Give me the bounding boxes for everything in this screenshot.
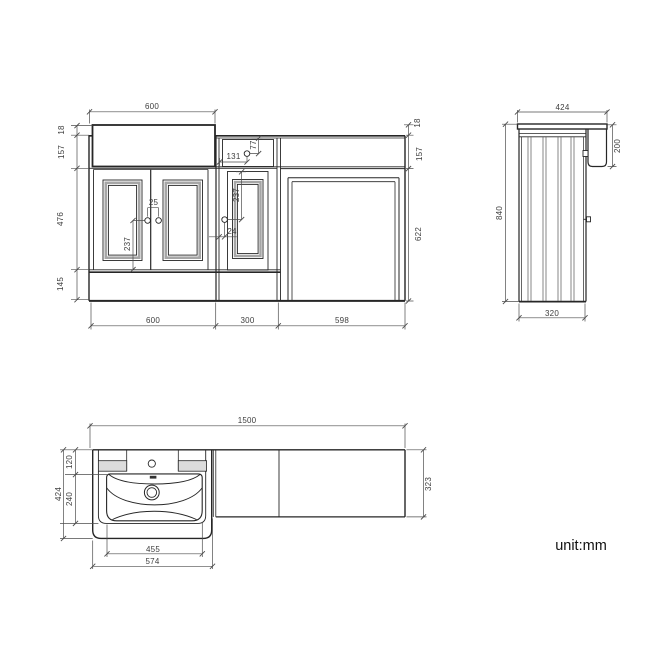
basin-front-face (93, 125, 216, 167)
dim-side-height: 840 (496, 206, 504, 220)
dim-side-cabinet-depth: 320 (545, 310, 559, 318)
dim-front-left-counter-lip: 18 (58, 125, 66, 134)
dim-front-bottom-vanity: 600 (146, 317, 160, 325)
dim-front-left-plinth: 145 (57, 277, 65, 291)
dim-front-bottom-middle: 300 (241, 317, 255, 325)
dim-front-drawer-knob-y: 77 (250, 141, 258, 150)
dim-plan-bowl-width: 455 (146, 546, 160, 554)
plan-view (93, 450, 405, 539)
dim-front-right-body-height: 622 (415, 227, 423, 241)
side-countertop (518, 124, 608, 129)
dim-front-left-door-height: 476 (57, 212, 65, 226)
dim-side-apron-drop: 200 (614, 139, 622, 153)
right-door-panel (163, 180, 203, 261)
plan-dimension-lines (60, 423, 427, 569)
middle-door-knob (222, 217, 228, 223)
dim-front-right-counter-lip: 18 (414, 118, 422, 127)
dim-plan-total-depth: 424 (55, 487, 63, 501)
technical-drawing-page: 600 18 157 476 145 18 157 622 600 300 59… (0, 0, 650, 650)
dim-side-top-depth: 424 (556, 104, 570, 112)
dim-plan-counter-depth: 323 (425, 477, 433, 491)
dim-front-bottom-wc: 598 (335, 317, 349, 325)
dim-front-mid-knob-drop: 237 (233, 188, 241, 202)
dim-plan-basin-width: 574 (146, 558, 160, 566)
wc-unit-panel (288, 178, 399, 301)
side-basin-apron (588, 129, 607, 167)
side-panel-grooves (528, 137, 574, 301)
basin-bowl (107, 474, 203, 521)
dim-front-knob-gap: 25 (149, 199, 158, 207)
side-view (518, 124, 608, 302)
overflow-slot (150, 476, 157, 479)
side-door-knob (584, 217, 591, 222)
dim-front-top-width: 600 (145, 103, 159, 111)
dim-front-right-fascia: 157 (416, 147, 424, 161)
dim-plan-bowl-depth: 240 (66, 492, 74, 506)
dim-plan-total-width: 1500 (238, 417, 257, 425)
side-drawer-knob (583, 151, 588, 157)
dim-front-left-fascia: 157 (58, 145, 66, 159)
right-door-knob (156, 218, 162, 224)
drawer-knob (244, 151, 250, 157)
deck-ledge-left (98, 461, 126, 472)
dim-plan-deck-depth: 120 (66, 455, 74, 469)
left-door-knob (145, 218, 151, 224)
dim-front-mid-knob-offset: 24 (227, 228, 236, 236)
faucet-hole (148, 460, 155, 467)
deck-ledge-right (178, 461, 206, 472)
drawing-canvas (0, 0, 650, 650)
unit-note: unit:mm (555, 538, 607, 554)
dim-front-drawer-knob-x: 131 (227, 153, 241, 161)
front-elevation-view (89, 125, 405, 301)
dim-front-left-knob-drop: 237 (124, 237, 132, 251)
